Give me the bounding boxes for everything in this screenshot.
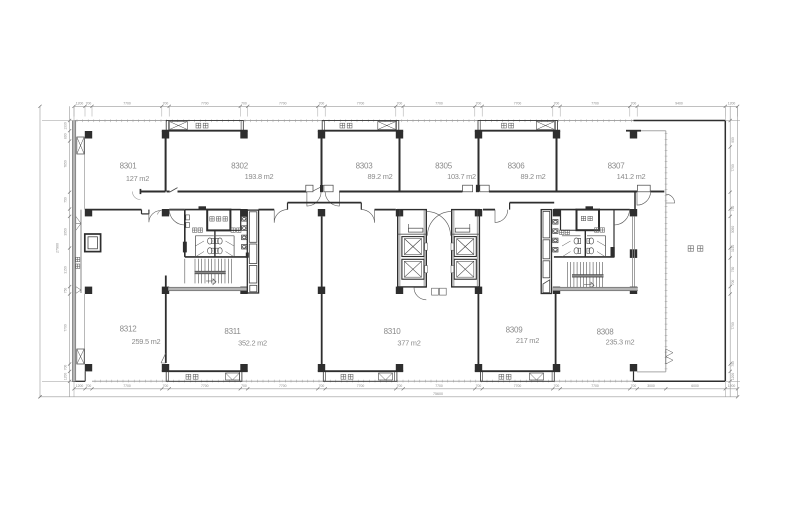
svg-text:1330: 1330 bbox=[63, 122, 67, 130]
svg-text:7700: 7700 bbox=[591, 101, 599, 105]
svg-text:193.8 m2: 193.8 m2 bbox=[245, 172, 274, 181]
svg-text:7700: 7700 bbox=[731, 322, 735, 330]
svg-text:8311: 8311 bbox=[224, 327, 241, 336]
svg-text:750: 750 bbox=[731, 206, 735, 212]
svg-text:7700: 7700 bbox=[201, 101, 209, 105]
svg-text:8307: 8307 bbox=[608, 162, 626, 171]
svg-text:7700: 7700 bbox=[123, 101, 131, 105]
svg-text:8309: 8309 bbox=[506, 326, 524, 335]
svg-text:750: 750 bbox=[731, 267, 735, 273]
svg-text:7700: 7700 bbox=[201, 384, 209, 388]
svg-text:235.3 m2: 235.3 m2 bbox=[606, 338, 635, 347]
svg-text:3050: 3050 bbox=[731, 226, 735, 234]
svg-text:700: 700 bbox=[397, 384, 403, 388]
svg-text:1200: 1200 bbox=[728, 101, 736, 105]
svg-text:8306: 8306 bbox=[508, 162, 526, 171]
svg-text:1200: 1200 bbox=[76, 384, 84, 388]
svg-text:700: 700 bbox=[631, 384, 637, 388]
svg-text:700: 700 bbox=[163, 384, 169, 388]
svg-text:103.7 m2: 103.7 m2 bbox=[447, 172, 476, 181]
svg-text:1200: 1200 bbox=[63, 373, 67, 381]
svg-text:8302: 8302 bbox=[231, 162, 249, 171]
svg-text:352.2 m2: 352.2 m2 bbox=[238, 339, 267, 348]
svg-text:1200: 1200 bbox=[731, 373, 735, 381]
svg-text:7700: 7700 bbox=[514, 384, 522, 388]
svg-text:3150: 3150 bbox=[731, 245, 735, 253]
svg-text:1200: 1200 bbox=[728, 384, 736, 388]
svg-text:750: 750 bbox=[63, 197, 67, 203]
svg-text:3150: 3150 bbox=[63, 266, 67, 274]
svg-text:3000: 3000 bbox=[647, 384, 655, 388]
svg-text:7700: 7700 bbox=[435, 101, 443, 105]
svg-text:700: 700 bbox=[63, 365, 67, 371]
svg-text:700: 700 bbox=[319, 101, 325, 105]
svg-text:700: 700 bbox=[631, 101, 637, 105]
svg-text:7650: 7650 bbox=[63, 160, 67, 168]
svg-text:8310: 8310 bbox=[384, 327, 402, 336]
svg-text:700: 700 bbox=[86, 101, 92, 105]
svg-text:700: 700 bbox=[397, 101, 403, 105]
svg-text:700: 700 bbox=[476, 384, 482, 388]
svg-text:377 m2: 377 m2 bbox=[397, 339, 420, 348]
svg-text:7700: 7700 bbox=[435, 384, 443, 388]
svg-text:7700: 7700 bbox=[514, 101, 522, 105]
svg-text:700: 700 bbox=[86, 384, 92, 388]
svg-text:7700: 7700 bbox=[123, 384, 131, 388]
svg-text:7700: 7700 bbox=[279, 384, 287, 388]
svg-text:8303: 8303 bbox=[356, 162, 374, 171]
svg-text:700: 700 bbox=[319, 384, 325, 388]
svg-text:7700: 7700 bbox=[731, 164, 735, 172]
svg-text:7700: 7700 bbox=[279, 101, 287, 105]
svg-text:6000: 6000 bbox=[691, 384, 699, 388]
svg-text:890: 890 bbox=[63, 133, 67, 139]
svg-text:700: 700 bbox=[554, 101, 560, 105]
svg-text:7700: 7700 bbox=[357, 101, 365, 105]
svg-text:700: 700 bbox=[731, 280, 735, 286]
svg-text:700: 700 bbox=[476, 101, 482, 105]
svg-text:700: 700 bbox=[241, 384, 247, 388]
svg-text:7700: 7700 bbox=[63, 324, 67, 332]
svg-text:8305: 8305 bbox=[435, 162, 453, 171]
svg-text:700: 700 bbox=[241, 101, 247, 105]
svg-text:8312: 8312 bbox=[120, 325, 138, 334]
svg-text:3050: 3050 bbox=[63, 228, 67, 236]
svg-text:950: 950 bbox=[731, 137, 735, 143]
svg-text:9400: 9400 bbox=[675, 101, 683, 105]
svg-text:700: 700 bbox=[731, 361, 735, 367]
svg-text:7700: 7700 bbox=[591, 384, 599, 388]
svg-text:89.2 m2: 89.2 m2 bbox=[521, 172, 546, 181]
svg-text:217 m2: 217 m2 bbox=[516, 336, 539, 345]
svg-text:700: 700 bbox=[163, 101, 169, 105]
svg-text:7700: 7700 bbox=[357, 384, 365, 388]
svg-text:27900: 27900 bbox=[56, 243, 60, 253]
svg-text:89.2 m2: 89.2 m2 bbox=[368, 172, 393, 181]
svg-text:127 m2: 127 m2 bbox=[126, 174, 149, 183]
svg-text:8308: 8308 bbox=[597, 328, 615, 337]
svg-text:700: 700 bbox=[554, 384, 560, 388]
svg-text:750: 750 bbox=[63, 288, 67, 294]
svg-text:141.2 m2: 141.2 m2 bbox=[617, 172, 646, 181]
svg-text:75600: 75600 bbox=[433, 392, 443, 396]
svg-text:259.5 m2: 259.5 m2 bbox=[132, 337, 161, 346]
svg-text:8301: 8301 bbox=[120, 162, 138, 171]
svg-text:1200: 1200 bbox=[76, 101, 84, 105]
